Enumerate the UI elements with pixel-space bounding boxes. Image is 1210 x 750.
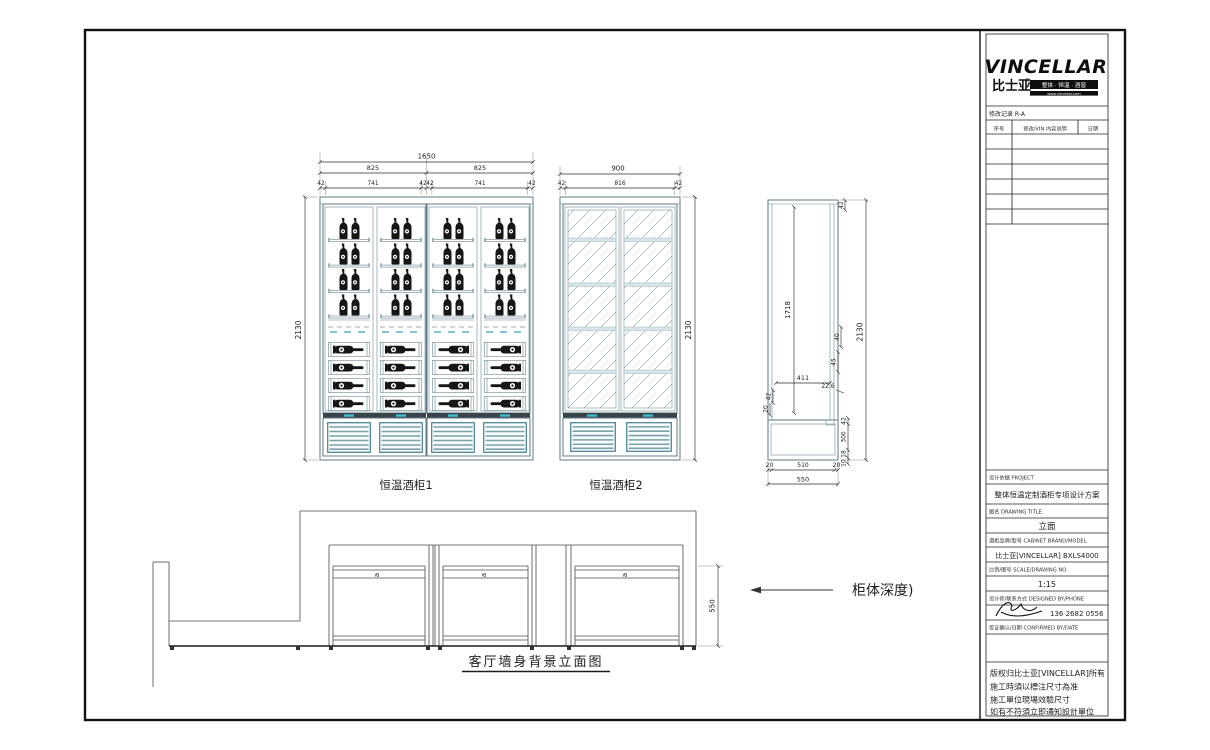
dim-side-height: 2130 xyxy=(856,322,865,341)
revision-col-desc: 修改/VIN 内容说明 xyxy=(1023,125,1066,133)
dim-side-411: 411 xyxy=(797,374,809,382)
dim-side-b20a: 20 xyxy=(766,462,774,469)
drawing-scale: 1:15 xyxy=(1038,580,1056,589)
drawing-title: 立面 xyxy=(1038,521,1056,532)
cad-sheet: 1650 825 825 42 741 42 42 741 42 2130 xyxy=(0,0,1210,750)
arrow-left-icon xyxy=(750,587,761,594)
cabinet-model: 比士亚[VINCELLAR] BXLS4000 xyxy=(995,551,1098,560)
dim-side-inner-height: 1718 xyxy=(784,301,792,319)
cabinet2-front-view xyxy=(560,197,680,460)
section-label: 图名 DRAWING TITLE xyxy=(989,508,1042,516)
title-block-notes: 版权归比士亚[VINCELLAR]所有 施工時須以標注尺寸為准 施工單位現場效驗… xyxy=(990,668,1105,717)
drawing-sheet-svg: 1650 825 825 42 741 42 42 741 42 2130 xyxy=(0,0,1210,750)
dim-side-45: 45 xyxy=(831,358,838,366)
brand-website: www.vincellar.com xyxy=(1047,92,1081,96)
note-line: 施工時須以標注尺寸為准 xyxy=(990,682,1078,692)
section-label: 酒柜品牌/型号 CABINET BRAND/MODEL xyxy=(989,537,1087,545)
revision-title: 修改记录 R-A xyxy=(989,110,1026,118)
dim-side-10: 10 xyxy=(841,459,848,467)
dim-cab2-height: 2130 xyxy=(684,320,693,339)
brand-wordmark: VINCELLAR xyxy=(985,56,1108,78)
dim-side-left20: 20 xyxy=(763,405,770,413)
dim-cab2-sub-0: 42 xyxy=(558,181,566,187)
dim-plan-depth: 550 xyxy=(709,599,717,612)
revision-table: 修改记录 R-A 序号 修改/VIN 内容说明 日期 xyxy=(989,110,1098,133)
dim-side-top42: 42 xyxy=(838,201,845,209)
title-block-sections: 设计依据 PROJECT 整体恒温定制酒柜专项设计方案 图名 DRAWING T… xyxy=(989,474,1104,632)
dim-cab1-sub-3: 42 xyxy=(426,181,434,187)
vincellar-logo: VINCELLAR 比士亚 ® 整体 · 恒温 · 酒窖 www.vincell… xyxy=(985,56,1108,96)
dim-side-left42: 42 xyxy=(766,393,773,401)
door-swing-mark: a xyxy=(480,573,488,577)
note-line: 版权归比士亚[VINCELLAR]所有 xyxy=(990,668,1105,678)
side-section-view xyxy=(768,200,838,460)
dim-side-22-6: 22.6 xyxy=(821,383,835,390)
dim-cab1-half-a: 825 xyxy=(367,164,379,172)
note-line: 如有不符須立即通知設計單位 xyxy=(990,707,1094,717)
dim-cab1-total: 1650 xyxy=(418,153,436,161)
project-name: 整体恒温定制酒柜专项设计方案 xyxy=(995,490,1100,500)
cabinet1-label: 恒温酒柜1 xyxy=(379,478,432,492)
dim-side-550: 550 xyxy=(797,476,809,484)
plan-title: 客厅墙身背景立面图 xyxy=(468,654,603,670)
dim-cab1-half-b: 825 xyxy=(474,164,486,172)
title-block: VINCELLAR 比士亚 ® 整体 · 恒温 · 酒窖 www.vincell… xyxy=(985,34,1108,717)
door-swing-mark: a xyxy=(621,573,629,577)
kick-bar xyxy=(323,413,426,418)
dim-cab1-sub-1: 741 xyxy=(367,181,378,187)
dim-side-b20b: 20 xyxy=(833,462,841,469)
section-label: 设计师/联系方式 DESIGNED BY/PHONE xyxy=(989,595,1084,603)
kick-bar xyxy=(427,413,530,418)
section-label: 设计依据 PROJECT xyxy=(989,474,1035,482)
side-view-dimensions: 1718 411 42 40 45 22.6 42 20 2130 42 300… xyxy=(763,200,869,487)
cabinet2-label: 恒温酒柜2 xyxy=(589,478,642,492)
designer-phone: 136 2682 0556 xyxy=(1050,610,1104,618)
cabinet1-front-view xyxy=(320,197,533,460)
dim-cab2-sub-1: 816 xyxy=(614,181,625,187)
plan-view: a a a 550 柜体深度) 客厅墙身背景立面图 xyxy=(153,511,913,687)
cabinet-depth-note: 柜体深度) xyxy=(852,583,913,599)
dim-side-40: 40 xyxy=(834,333,841,341)
dim-cab1-sub-4: 741 xyxy=(474,181,485,187)
section-label: 比例/图号 SCALE/DRAWING NO. xyxy=(989,566,1068,574)
revision-col-no: 序号 xyxy=(994,125,1004,133)
dim-cab1-height: 2130 xyxy=(294,320,303,339)
dim-cab2-sub-2: 42 xyxy=(675,181,683,187)
dim-cab1-sub-0: 42 xyxy=(317,181,325,187)
dim-side-right42: 42 xyxy=(841,417,848,425)
louver-vents xyxy=(571,423,672,452)
dim-cab1-sub-5: 42 xyxy=(528,181,536,187)
revision-col-date: 日期 xyxy=(1088,126,1098,133)
note-line: 施工單位現場效驗尺寸 xyxy=(990,695,1070,705)
dim-cab2-total: 900 xyxy=(611,165,624,173)
kick-bar xyxy=(563,413,677,418)
section-label: 签证确认/日期 CONFIRMED BY/DATE xyxy=(989,624,1078,632)
registered-mark-icon: ® xyxy=(1025,77,1030,84)
dim-side-18: 18 xyxy=(841,450,848,458)
door-swing-mark: a xyxy=(373,573,381,577)
brand-tagline: 整体 · 恒温 · 酒窖 xyxy=(1042,81,1087,89)
dim-side-300: 300 xyxy=(841,431,848,443)
dim-side-b510: 510 xyxy=(797,462,809,469)
